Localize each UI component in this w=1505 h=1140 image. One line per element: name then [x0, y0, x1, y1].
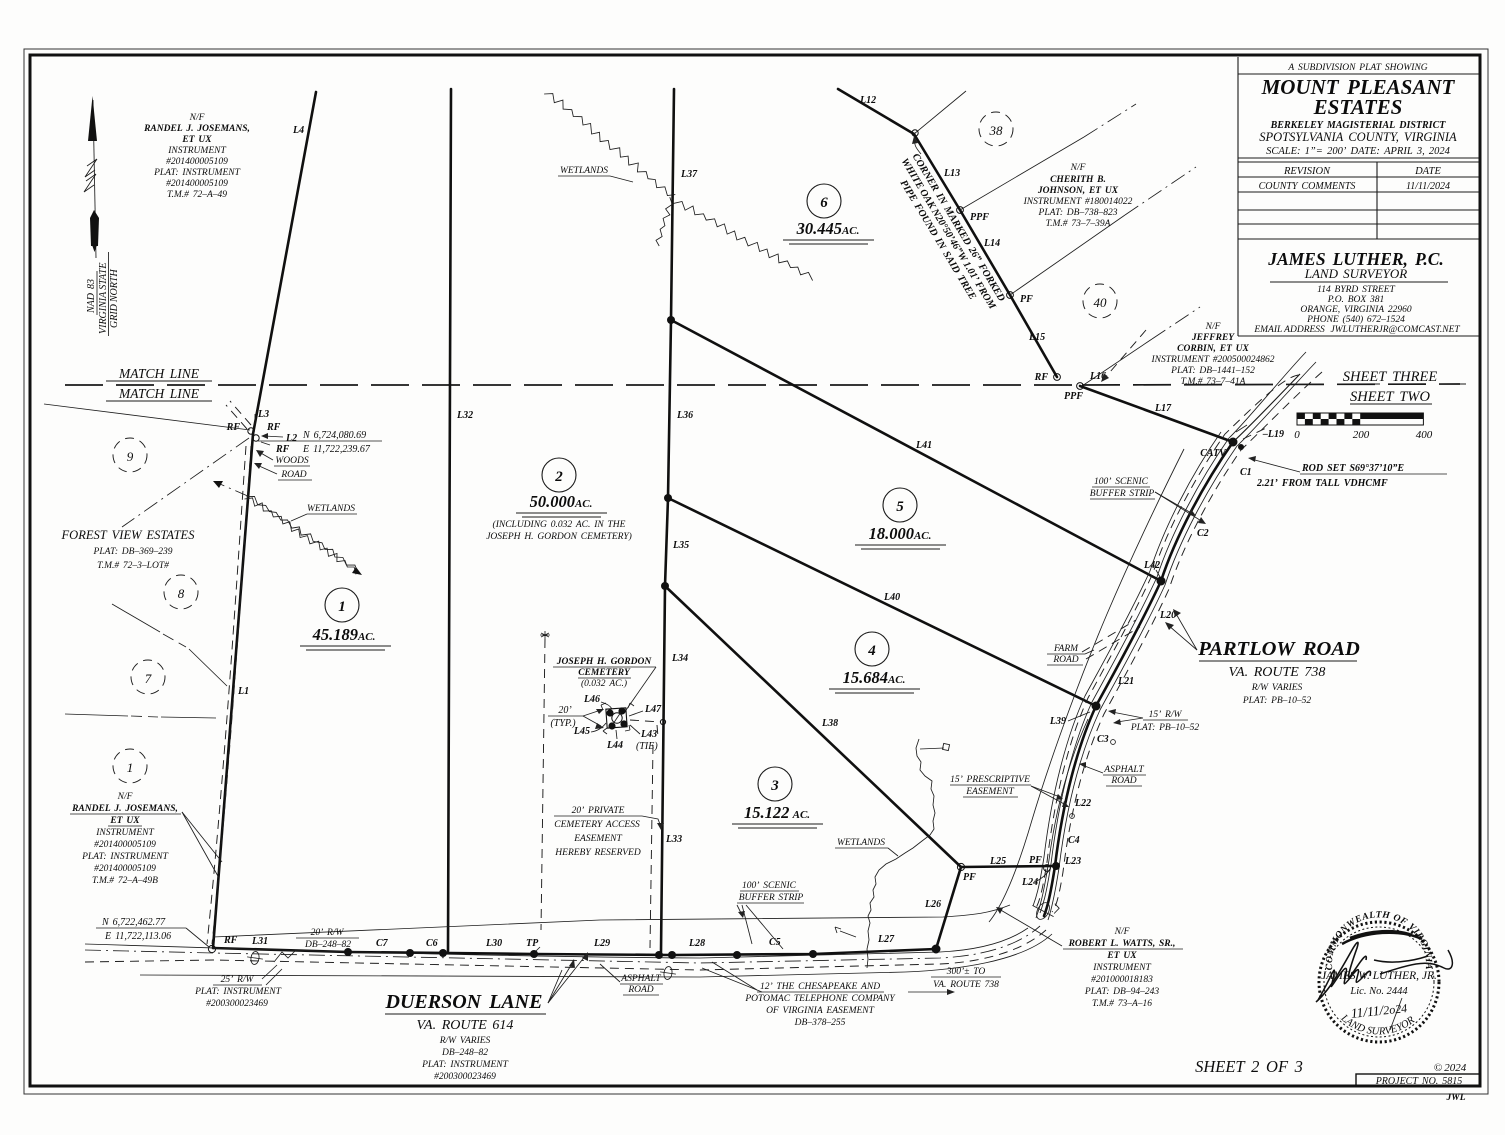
- svg-text:L47: L47: [644, 704, 662, 715]
- svg-text:C4: C4: [1068, 835, 1080, 846]
- svg-text:40: 40: [1094, 295, 1108, 310]
- svg-text:2: 2: [554, 469, 563, 485]
- svg-text:PLAT: DB–94–243: PLAT: DB–94–243: [1084, 987, 1159, 997]
- svg-text:FARM: FARM: [1053, 644, 1079, 654]
- svg-text:#201000018183: #201000018183: [1091, 975, 1153, 985]
- svg-text:PLAT: DB–1441–152: PLAT: DB–1441–152: [1170, 366, 1255, 376]
- svg-text:L37: L37: [680, 169, 698, 180]
- svg-text:(TIE): (TIE): [636, 741, 658, 752]
- svg-text:INSTRUMENT #200500024862: INSTRUMENT #200500024862: [1150, 355, 1274, 365]
- svg-text:PLAT: PB–10–52: PLAT: PB–10–52: [1130, 723, 1200, 733]
- svg-text:25’ R/W: 25’ R/W: [221, 975, 255, 985]
- svg-text:RF: RF: [275, 444, 290, 455]
- svg-text:#200300023469: #200300023469: [206, 999, 268, 1009]
- svg-text:P.O. BOX 381: P.O. BOX 381: [1327, 295, 1385, 305]
- svg-text:L42: L42: [1143, 560, 1160, 571]
- svg-text:200: 200: [1353, 429, 1370, 441]
- svg-text:DB–378–255: DB–378–255: [794, 1018, 846, 1028]
- svg-text:20’ PRIVATE: 20’ PRIVATE: [572, 806, 625, 816]
- svg-text:EMAIL ADDRESS JWLUTHERJR@COM: EMAIL ADDRESS JWLUTHERJR@COMCAST.NET: [1253, 325, 1460, 335]
- svg-text:T.M.# 73–7–39A: T.M.# 73–7–39A: [1046, 219, 1111, 229]
- svg-text:PLAT: INSTRUMENT: PLAT: INSTRUMENT: [153, 168, 241, 178]
- svg-text:100’ SCENIC: 100’ SCENIC: [1094, 477, 1149, 487]
- svg-text:12’ THE CHESAPEAKE AND: 12’ THE CHESAPEAKE AND: [760, 982, 880, 992]
- svg-text:SHEET TWO: SHEET TWO: [1350, 389, 1430, 405]
- svg-text:C2: C2: [1197, 528, 1209, 539]
- svg-text:L29: L29: [593, 938, 610, 949]
- svg-text:PROJECT NO. 5815: PROJECT NO. 5815: [1375, 1076, 1463, 1087]
- svg-text:L28: L28: [688, 938, 705, 949]
- svg-text:8: 8: [178, 586, 185, 601]
- svg-text:SPOTSYLVANIA COUNTY, VIRGINI: SPOTSYLVANIA COUNTY, VIRGINIA: [1259, 130, 1457, 144]
- svg-text:PLAT: INSTRUMENT: PLAT: INSTRUMENT: [194, 987, 282, 997]
- svg-text:20’: 20’: [558, 705, 572, 716]
- svg-text:PF: PF: [1029, 855, 1042, 866]
- svg-text:PARTLOW ROAD: PARTLOW ROAD: [1197, 638, 1360, 660]
- svg-text:WOODS: WOODS: [275, 456, 308, 466]
- svg-text:L21: L21: [1117, 676, 1134, 687]
- svg-text:SCALE: 1”= 200’ DATE: APRI: SCALE: 1”= 200’ DATE: APRIL 3, 2024: [1266, 146, 1451, 157]
- svg-text:CATV: CATV: [1200, 448, 1227, 459]
- svg-text:COUNTY COMMENTS: COUNTY COMMENTS: [1259, 181, 1356, 192]
- svg-text:T.M.# 73–7–41A: T.M.# 73–7–41A: [1181, 377, 1246, 387]
- svg-text:L15: L15: [1028, 332, 1045, 343]
- svg-text:INSTRUMENT: INSTRUMENT: [95, 828, 154, 838]
- svg-text:6: 6: [820, 195, 828, 211]
- svg-text:JOSEPH H. GORDON CEMETERY): JOSEPH H. GORDON CEMETERY): [486, 531, 632, 542]
- svg-text:EASEMENT: EASEMENT: [965, 787, 1014, 797]
- svg-text:L24: L24: [1021, 877, 1038, 888]
- svg-text:#201400005109: #201400005109: [94, 840, 156, 850]
- svg-text:ET UX: ET UX: [181, 135, 212, 145]
- svg-text:DUERSON LANE: DUERSON LANE: [385, 991, 543, 1013]
- svg-text:N/F: N/F: [189, 113, 205, 123]
- svg-text:1: 1: [127, 760, 134, 775]
- svg-text:N/F: N/F: [1114, 927, 1130, 937]
- svg-text:L43: L43: [640, 729, 657, 740]
- svg-text:#201400005109: #201400005109: [166, 157, 228, 167]
- svg-text:ET UX: ET UX: [109, 816, 140, 826]
- svg-text:ASPHALT: ASPHALT: [1103, 765, 1144, 775]
- svg-text:VA. ROUTE 614: VA. ROUTE 614: [417, 1018, 514, 1033]
- svg-text:L13: L13: [943, 168, 960, 179]
- svg-text:PLAT: INSTRUMENT: PLAT: INSTRUMENT: [421, 1060, 509, 1070]
- svg-text:RF: RF: [1034, 372, 1049, 383]
- svg-text:N/F: N/F: [1205, 322, 1221, 332]
- svg-text:L4: L4: [292, 125, 304, 136]
- svg-text:MATCH LINE: MATCH LINE: [118, 366, 200, 381]
- svg-text:7: 7: [145, 671, 152, 686]
- svg-text:2.21’ FROM TALL VDHCMF: 2.21’ FROM TALL VDHCMF: [1256, 478, 1388, 489]
- svg-text:C1: C1: [1240, 467, 1252, 478]
- svg-text:–L19: –L19: [1262, 429, 1284, 440]
- svg-text:CEMETERY: CEMETERY: [578, 668, 631, 678]
- svg-text:BUFFER STRIP: BUFFER STRIP: [1090, 489, 1155, 499]
- svg-text:L36: L36: [676, 410, 693, 421]
- svg-text:JOSEPH H. GORDON: JOSEPH H. GORDON: [556, 657, 653, 667]
- svg-text:L33: L33: [665, 834, 682, 845]
- svg-text:NAD 83: NAD 83: [86, 279, 97, 314]
- svg-text:0: 0: [1294, 429, 1300, 441]
- svg-text:N/F: N/F: [1070, 163, 1086, 173]
- svg-text:T.M.# 72–A–49B: T.M.# 72–A–49B: [92, 876, 158, 886]
- svg-text:ROAD: ROAD: [1110, 776, 1136, 786]
- svg-text:VIRGINIA STATE: VIRGINIA STATE: [98, 263, 109, 334]
- svg-text:ROBERT L. WATTS, SR.,: ROBERT L. WATTS, SR.,: [1068, 939, 1176, 949]
- svg-text:T.M.# 73–A–16: T.M.# 73–A–16: [1092, 999, 1152, 1009]
- svg-text:3: 3: [770, 778, 779, 794]
- svg-text:RF: RF: [223, 935, 238, 946]
- svg-text:CORBIN, ET UX: CORBIN, ET UX: [1177, 344, 1249, 354]
- svg-text:PHONE (540) 672–1524: PHONE (540) 672–1524: [1306, 314, 1405, 325]
- svg-text:15’ PRESCRIPTIVE: 15’ PRESCRIPTIVE: [950, 775, 1030, 785]
- svg-text:ROD SET S69°37’10”E: ROD SET S69°37’10”E: [1301, 463, 1404, 474]
- svg-text:C7: C7: [376, 938, 389, 949]
- svg-text:LAND SURVEYOR: LAND SURVEYOR: [1304, 266, 1408, 281]
- svg-text:GRID NORTH: GRID NORTH: [109, 269, 120, 328]
- svg-text:DB–248–82: DB–248–82: [441, 1048, 488, 1058]
- svg-text:11/11/2024: 11/11/2024: [1406, 181, 1450, 192]
- svg-text:C6: C6: [426, 938, 438, 949]
- svg-text:VA. ROUTE 738: VA. ROUTE 738: [933, 980, 999, 990]
- svg-text:ROAD: ROAD: [1052, 655, 1078, 665]
- svg-text:PPF: PPF: [1064, 391, 1083, 402]
- svg-text:ORANGE, VIRGINIA 22960: ORANGE, VIRGINIA 22960: [1300, 305, 1412, 315]
- svg-text:L22: L22: [1074, 798, 1091, 809]
- svg-text:L17: L17: [1154, 403, 1172, 414]
- svg-text:VA. ROUTE 738: VA. ROUTE 738: [1229, 665, 1326, 680]
- svg-text:E 11,722,239.67: E 11,722,239.67: [302, 444, 371, 455]
- svg-text:ESTATES: ESTATES: [1313, 95, 1403, 119]
- svg-text:#200300023469: #200300023469: [434, 1072, 496, 1082]
- svg-text:CHERITH B.: CHERITH B.: [1050, 175, 1106, 185]
- svg-text:RANDEL J. JOSEMANS,: RANDEL J. JOSEMANS,: [143, 124, 250, 134]
- svg-text:N/F: N/F: [117, 792, 133, 802]
- svg-text:L35: L35: [672, 540, 689, 551]
- svg-text:R/W VARIES: R/W VARIES: [1251, 683, 1303, 693]
- svg-text:L27: L27: [877, 934, 895, 945]
- svg-text:L39: L39: [1049, 716, 1066, 727]
- svg-text:A SUBDIVISION PLAT SHOWING: A SUBDIVISION PLAT SHOWING: [1287, 63, 1427, 73]
- svg-text:L31: L31: [251, 936, 268, 947]
- svg-text:ROAD: ROAD: [280, 470, 306, 480]
- svg-text:POTOMAC TELEPHONE COMPANY: POTOMAC TELEPHONE COMPANY: [744, 994, 896, 1004]
- svg-text:REVISION: REVISION: [1283, 166, 1331, 177]
- svg-text:400: 400: [1416, 429, 1433, 441]
- svg-text:FOREST VIEW ESTATES: FOREST VIEW ESTATES: [61, 528, 196, 542]
- svg-text:ROAD: ROAD: [627, 985, 653, 995]
- svg-text:L12: L12: [859, 95, 876, 106]
- svg-text:Lic. No. 2444: Lic. No. 2444: [1349, 986, 1408, 997]
- svg-text:L38: L38: [821, 718, 838, 729]
- svg-text:INSTRUMENT #180014022: INSTRUMENT #180014022: [1023, 197, 1133, 207]
- svg-text:JWL: JWL: [1446, 1093, 1466, 1103]
- svg-text:BUFFER STRIP: BUFFER STRIP: [739, 893, 804, 903]
- svg-text:L3: L3: [257, 409, 269, 420]
- svg-text:TP: TP: [526, 938, 539, 949]
- svg-text:L46: L46: [583, 694, 600, 705]
- svg-text:ASPHALT: ASPHALT: [620, 974, 661, 984]
- svg-text:20’ R/W: 20’ R/W: [311, 928, 345, 938]
- svg-text:#201400005109: #201400005109: [166, 179, 228, 189]
- svg-text:SHEET THREE: SHEET THREE: [1343, 369, 1438, 385]
- svg-text:1: 1: [338, 599, 346, 615]
- svg-text:PLAT: DB–738–823: PLAT: DB–738–823: [1038, 208, 1118, 218]
- svg-text:L32: L32: [456, 410, 473, 421]
- svg-text:T.M.# 72–3–LOT#: T.M.# 72–3–LOT#: [97, 561, 169, 571]
- svg-text:WETLANDS: WETLANDS: [560, 166, 608, 176]
- svg-text:INSTRUMENT: INSTRUMENT: [167, 146, 226, 156]
- svg-text:C3: C3: [1097, 734, 1109, 745]
- svg-text:WETLANDS: WETLANDS: [837, 838, 885, 848]
- svg-text:PLAT: PB–10–52: PLAT: PB–10–52: [1242, 696, 1312, 706]
- svg-text:E 11,722,113.06: E 11,722,113.06: [104, 931, 171, 942]
- svg-text:L40: L40: [883, 592, 900, 603]
- svg-text:PLAT: INSTRUMENT: PLAT: INSTRUMENT: [81, 852, 169, 862]
- svg-text:RF: RF: [266, 422, 281, 433]
- svg-text:5: 5: [896, 499, 904, 515]
- svg-text:© 2024: © 2024: [1434, 1062, 1467, 1074]
- svg-text:WETLANDS: WETLANDS: [307, 504, 355, 514]
- svg-text:100’ SCENIC: 100’ SCENIC: [742, 881, 797, 891]
- svg-text:L23: L23: [1064, 856, 1081, 867]
- svg-text:15’ R/W: 15’ R/W: [1149, 710, 1183, 720]
- svg-text:R/W VARIES: R/W VARIES: [439, 1036, 491, 1046]
- svg-text:4: 4: [867, 643, 876, 659]
- svg-text:EASEMENT: EASEMENT: [573, 834, 622, 844]
- svg-text:MATCH LINE: MATCH LINE: [118, 386, 200, 401]
- svg-text:38: 38: [989, 123, 1004, 138]
- svg-text:PPF: PPF: [970, 212, 989, 223]
- svg-text:PF: PF: [963, 872, 976, 883]
- svg-text:300’± TO: 300’± TO: [946, 967, 986, 977]
- svg-text:L30: L30: [485, 938, 502, 949]
- svg-text:SHEET 2 OF 3: SHEET 2 OF 3: [1195, 1057, 1303, 1076]
- svg-text:T.M.# 72–A–49: T.M.# 72–A–49: [167, 190, 227, 200]
- svg-text:OF VIRGINIA EASEMENT: OF VIRGINIA EASEMENT: [766, 1006, 875, 1016]
- svg-text:HEREBY RESERVED: HEREBY RESERVED: [554, 848, 641, 858]
- svg-text:N 6,724,080.69: N 6,724,080.69: [302, 430, 366, 441]
- svg-text:L1: L1: [237, 686, 249, 697]
- svg-text:(INCLUDING 0.032 AC. IN TH: (INCLUDING 0.032 AC. IN THE: [493, 519, 626, 530]
- svg-text:L34: L34: [671, 653, 688, 664]
- svg-text:JOHNSON, ET UX: JOHNSON, ET UX: [1037, 186, 1119, 196]
- svg-text:L44: L44: [606, 740, 623, 751]
- svg-text:ET UX: ET UX: [1106, 951, 1137, 961]
- svg-text:INSTRUMENT: INSTRUMENT: [1092, 963, 1151, 973]
- svg-text:114 BYRD STREET: 114 BYRD STREET: [1317, 285, 1395, 295]
- svg-text:(TYP.): (TYP.): [550, 718, 576, 729]
- svg-text:L26: L26: [924, 899, 941, 910]
- svg-text:RANDEL J. JOSEMANS,: RANDEL J. JOSEMANS,: [71, 804, 178, 814]
- svg-text:N 6,722,462.77: N 6,722,462.77: [101, 917, 166, 928]
- svg-text:PF: PF: [1020, 294, 1033, 305]
- svg-text:JEFFREY: JEFFREY: [1191, 333, 1235, 343]
- svg-text:DB–248–82: DB–248–82: [304, 940, 351, 950]
- svg-text:CEMETERY ACCESS: CEMETERY ACCESS: [554, 820, 640, 830]
- svg-text:PLAT: DB–369–239: PLAT: DB–369–239: [93, 547, 173, 557]
- svg-text:(0.032 AC.): (0.032 AC.): [581, 678, 627, 689]
- svg-text:DATE: DATE: [1414, 166, 1441, 177]
- svg-text:9: 9: [127, 449, 134, 464]
- svg-text:L14: L14: [983, 238, 1000, 249]
- svg-text:L41: L41: [915, 440, 932, 451]
- svg-text:#201400005109: #201400005109: [94, 864, 156, 874]
- svg-text:L2: L2: [285, 433, 297, 444]
- svg-text:L20: L20: [1159, 610, 1176, 621]
